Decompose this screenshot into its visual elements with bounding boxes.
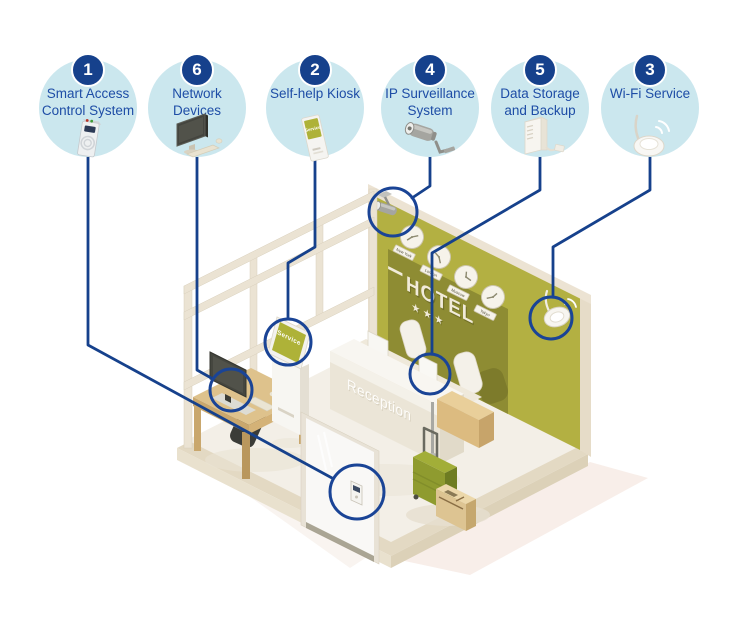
partition-post bbox=[316, 220, 323, 317]
suitcase-side bbox=[466, 499, 476, 531]
callout-number-badge: 2 bbox=[298, 53, 332, 87]
desktop-computer-icon bbox=[169, 110, 225, 166]
callout-number-badge: 4 bbox=[413, 53, 447, 87]
suitcase-wheel bbox=[414, 495, 419, 500]
callout-wifi-service: 3 Wi-Fi Service bbox=[601, 59, 699, 157]
callout-self-help-kiosk: 2 Self-help Kiosk Service bbox=[266, 59, 364, 157]
floor-shadow-desk bbox=[205, 448, 305, 472]
callout-data-storage: 5 Data Storage and Backup bbox=[491, 59, 589, 157]
wall-side-face bbox=[580, 293, 591, 457]
partition-top-beam bbox=[184, 191, 374, 294]
connector-line-wifi bbox=[553, 153, 650, 296]
kiosk-icon: Service bbox=[287, 110, 343, 166]
counter-pole bbox=[431, 402, 434, 454]
callout-number-badge: 5 bbox=[523, 53, 557, 87]
callout-number-badge: 6 bbox=[180, 53, 214, 87]
desk-leg bbox=[194, 404, 201, 451]
callout-label: Wi-Fi Service bbox=[573, 85, 727, 102]
card-reader-icon bbox=[60, 110, 116, 166]
callout-label-line1: Wi-Fi Service bbox=[573, 85, 727, 102]
infographic-canvas: HOTEL HOTEL ★★★ ★★★ New York London bbox=[0, 0, 731, 622]
callout-number-badge: 1 bbox=[71, 53, 105, 87]
access-device-button bbox=[355, 496, 358, 499]
connector-line-network-devices bbox=[197, 153, 213, 379]
cctv-camera-icon bbox=[402, 110, 458, 166]
desk-leg bbox=[242, 432, 250, 479]
callout-number-badge: 3 bbox=[633, 53, 667, 87]
wifi-router-icon bbox=[622, 110, 678, 166]
storage-server-icon bbox=[512, 110, 568, 166]
callout-network-devices: 6 Network Devices bbox=[148, 59, 246, 157]
